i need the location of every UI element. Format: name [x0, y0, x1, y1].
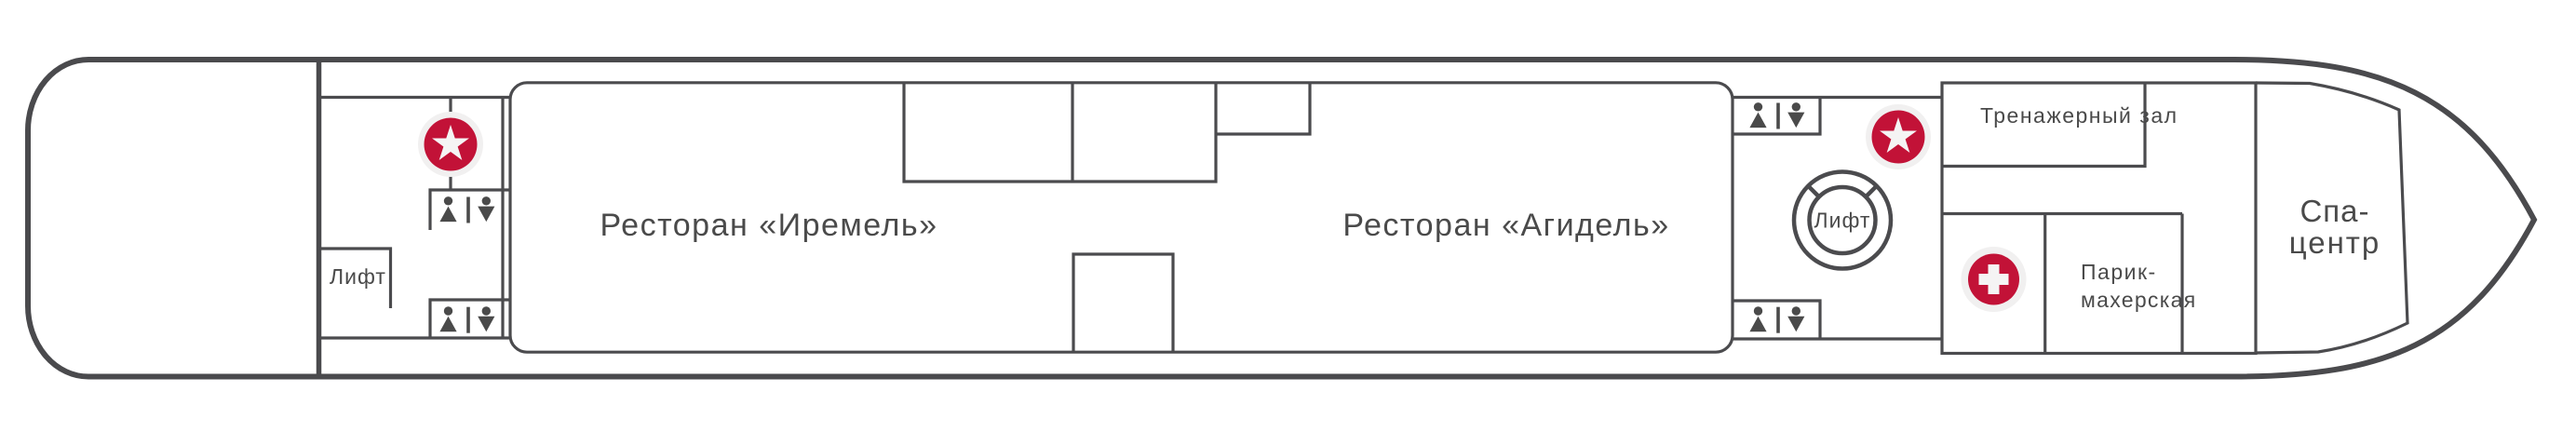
svg-text:Тренажерный зал: Тренажерный зал: [1980, 103, 2178, 128]
svg-text:Ресторан «Агидель»: Ресторан «Агидель»: [1342, 208, 1669, 243]
svg-text:Ресторан «Иремель»: Ресторан «Иремель»: [600, 208, 937, 243]
svg-text:Лифт: Лифт: [330, 264, 386, 289]
svg-text:Лифт: Лифт: [1814, 209, 1871, 233]
svg-text:центр: центр: [2289, 225, 2381, 260]
svg-text:махерская: махерская: [2081, 288, 2196, 312]
svg-text:Парик-: Парик-: [2081, 260, 2157, 284]
svg-text:Спа-: Спа-: [2300, 194, 2369, 228]
